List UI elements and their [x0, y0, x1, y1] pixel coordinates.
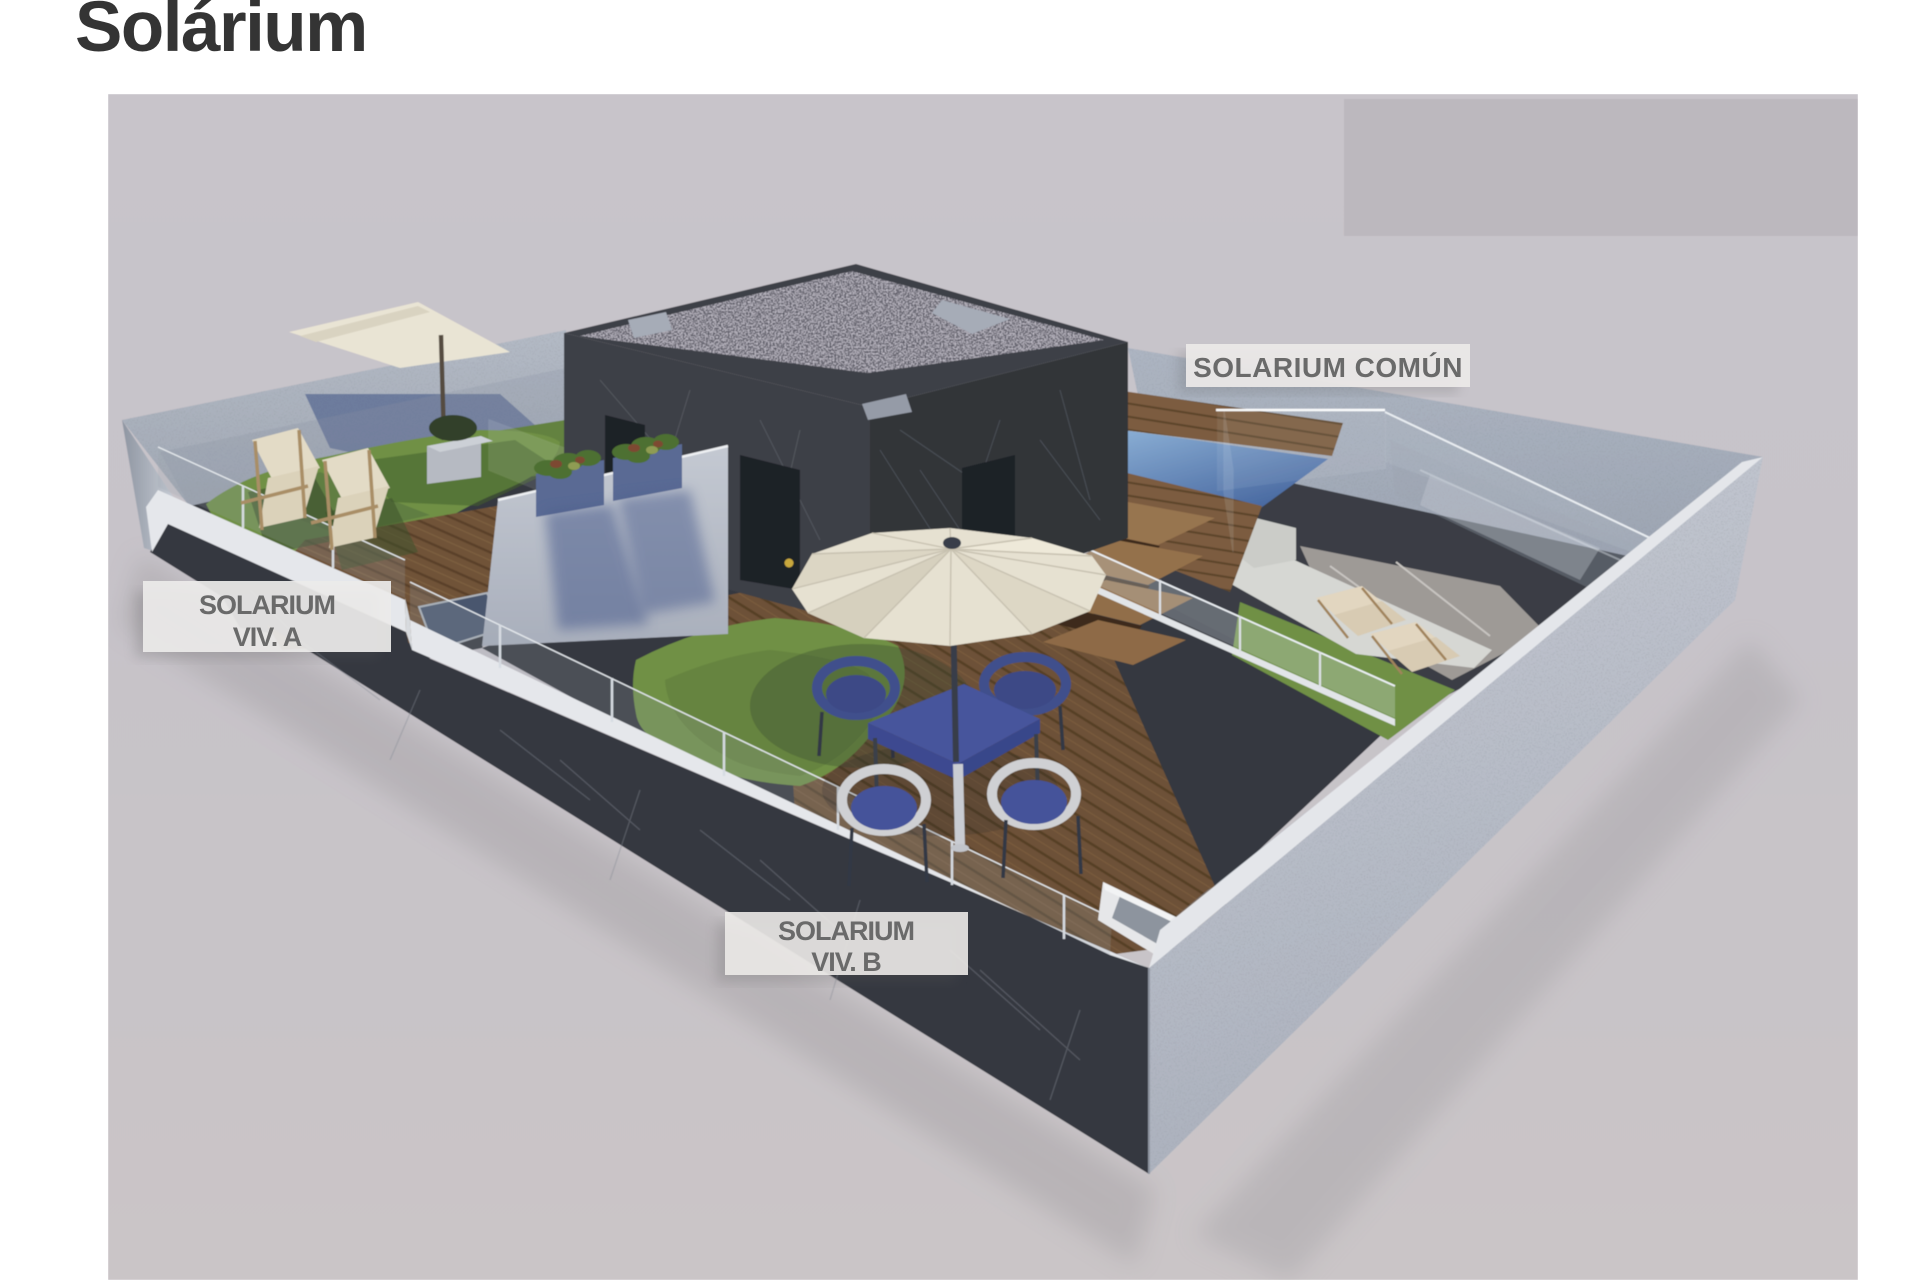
svg-text:VIV. A: VIV. A [233, 622, 302, 652]
svg-text:VIV. B: VIV. B [811, 947, 881, 977]
svg-text:SOLARIUM: SOLARIUM [199, 590, 335, 620]
svg-text:SOLARIUM COMÚN: SOLARIUM COMÚN [1193, 352, 1463, 383]
svg-text:SOLARIUM: SOLARIUM [778, 916, 914, 946]
